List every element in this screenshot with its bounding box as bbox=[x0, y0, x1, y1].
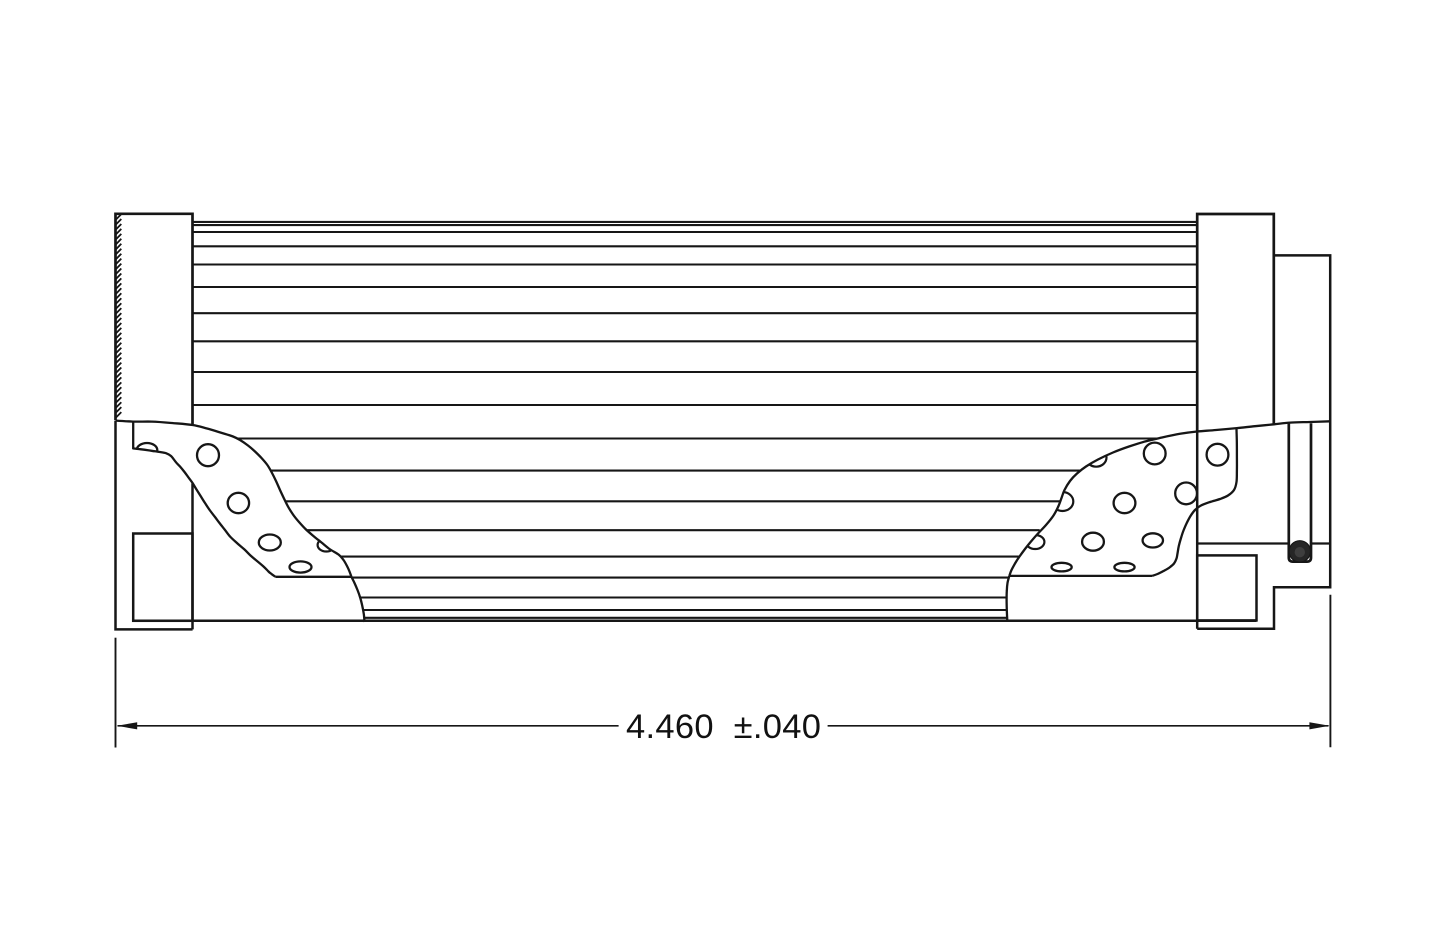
svg-text:4.460 ±.040: 4.460 ±.040 bbox=[626, 708, 821, 746]
